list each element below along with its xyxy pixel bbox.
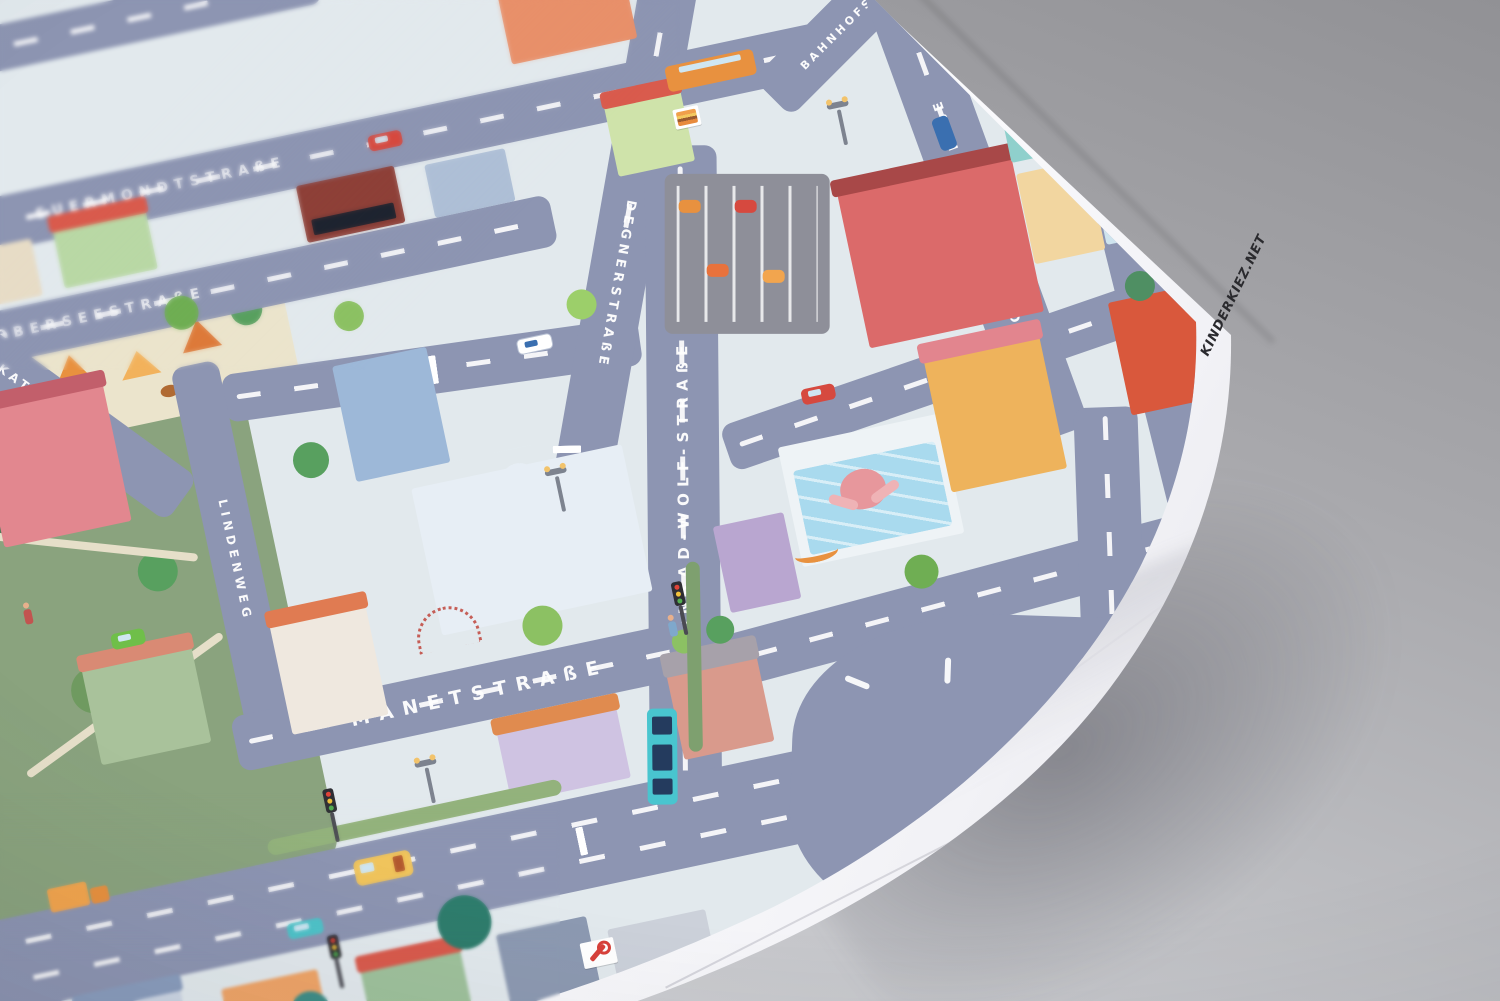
photo-vignette [0, 0, 1500, 1001]
photo-of-city-map-poster: SUERMONDTSTRAßE BAHNHOFSTRAßE OBERSEESTR… [0, 0, 1500, 1001]
